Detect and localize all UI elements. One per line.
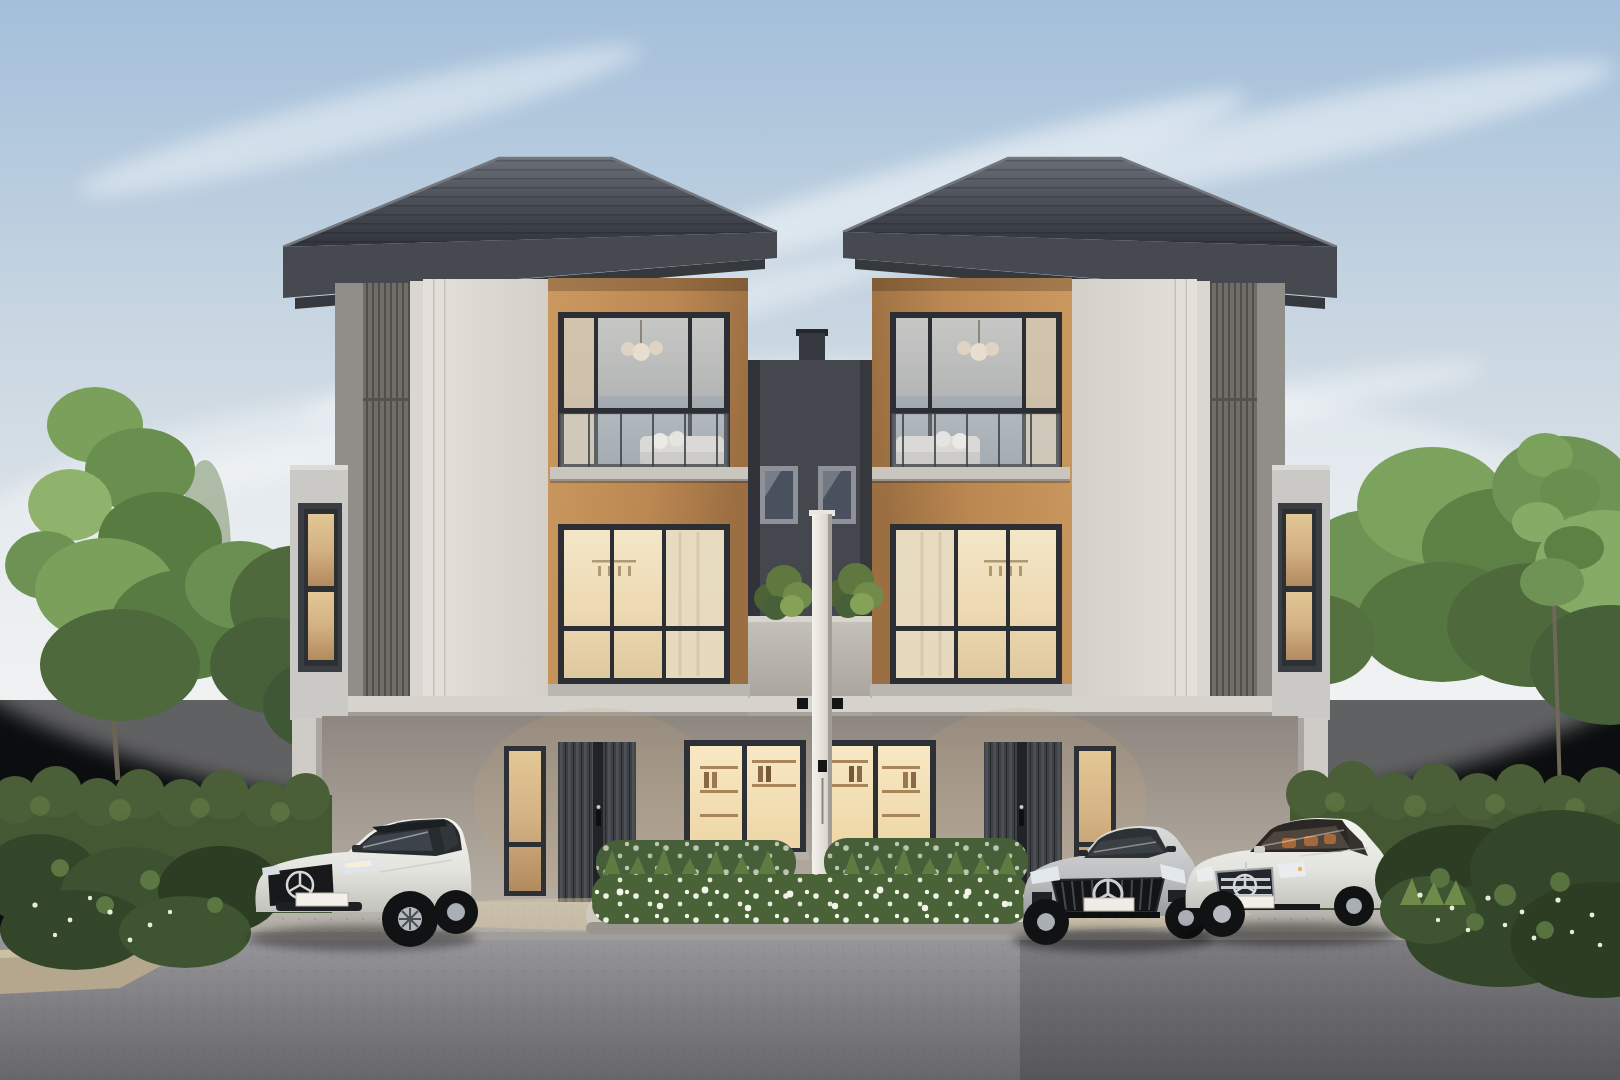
window-ledge [550,467,748,481]
keypad [818,760,827,772]
link-small-window-left [760,466,798,524]
side-wall-top-edge [290,465,348,470]
mullion [662,530,666,678]
front-wheel [382,891,438,947]
side-window-glow-upper [308,514,334,586]
side-window-glow-lower [308,592,334,660]
cladding-seam [363,398,410,401]
drl-dot [1298,867,1302,871]
vent-square [797,698,808,709]
front-wheel-left [1023,899,1069,945]
white-flowers [592,874,1028,924]
wall-seam [444,279,446,705]
second-floor-window [558,524,730,684]
license-plate [296,893,348,906]
side-mirror-left [1078,850,1088,856]
vent-square [832,698,843,709]
side-mirror [1254,846,1265,853]
curtain [666,530,724,678]
rendering-canvas: Photorealistic rendering of twin mirrore… [0,0,1620,1080]
license-plate [1084,898,1134,911]
link-balcony-parapet [748,616,872,700]
entry-sidelight-window [504,746,546,896]
door-handle [596,810,601,826]
glass-balustrade [560,414,728,470]
front-splitter [1056,912,1160,918]
mullion [610,530,614,678]
rear-wheel [434,890,478,934]
foreground-shrubs-left [0,834,282,970]
balustrade-rail [564,408,724,414]
mullion [742,746,747,848]
orange-top-shadow [548,278,748,291]
front-wheel [1199,891,1245,937]
cladding-ribs [363,283,410,705]
ledge-shadow [550,479,748,483]
house-left [283,158,809,909]
link-wall-shade-left [748,360,760,622]
scene-architectural-rendering: Photorealistic rendering of twin mirrore… [0,0,1620,1080]
cream-wall [423,279,548,705]
side-window-bar [308,586,334,592]
transom [564,626,724,631]
third-floor-window [558,312,730,470]
side-mirror [352,845,363,852]
house-right [811,158,1337,909]
floor-ledge [548,684,750,698]
pilaster [410,281,423,705]
door-lock [597,805,601,809]
pillar-slot [822,778,824,824]
wall-seam [433,279,435,705]
side-mirror-right [1166,846,1176,852]
rear-wheel [1334,886,1374,926]
